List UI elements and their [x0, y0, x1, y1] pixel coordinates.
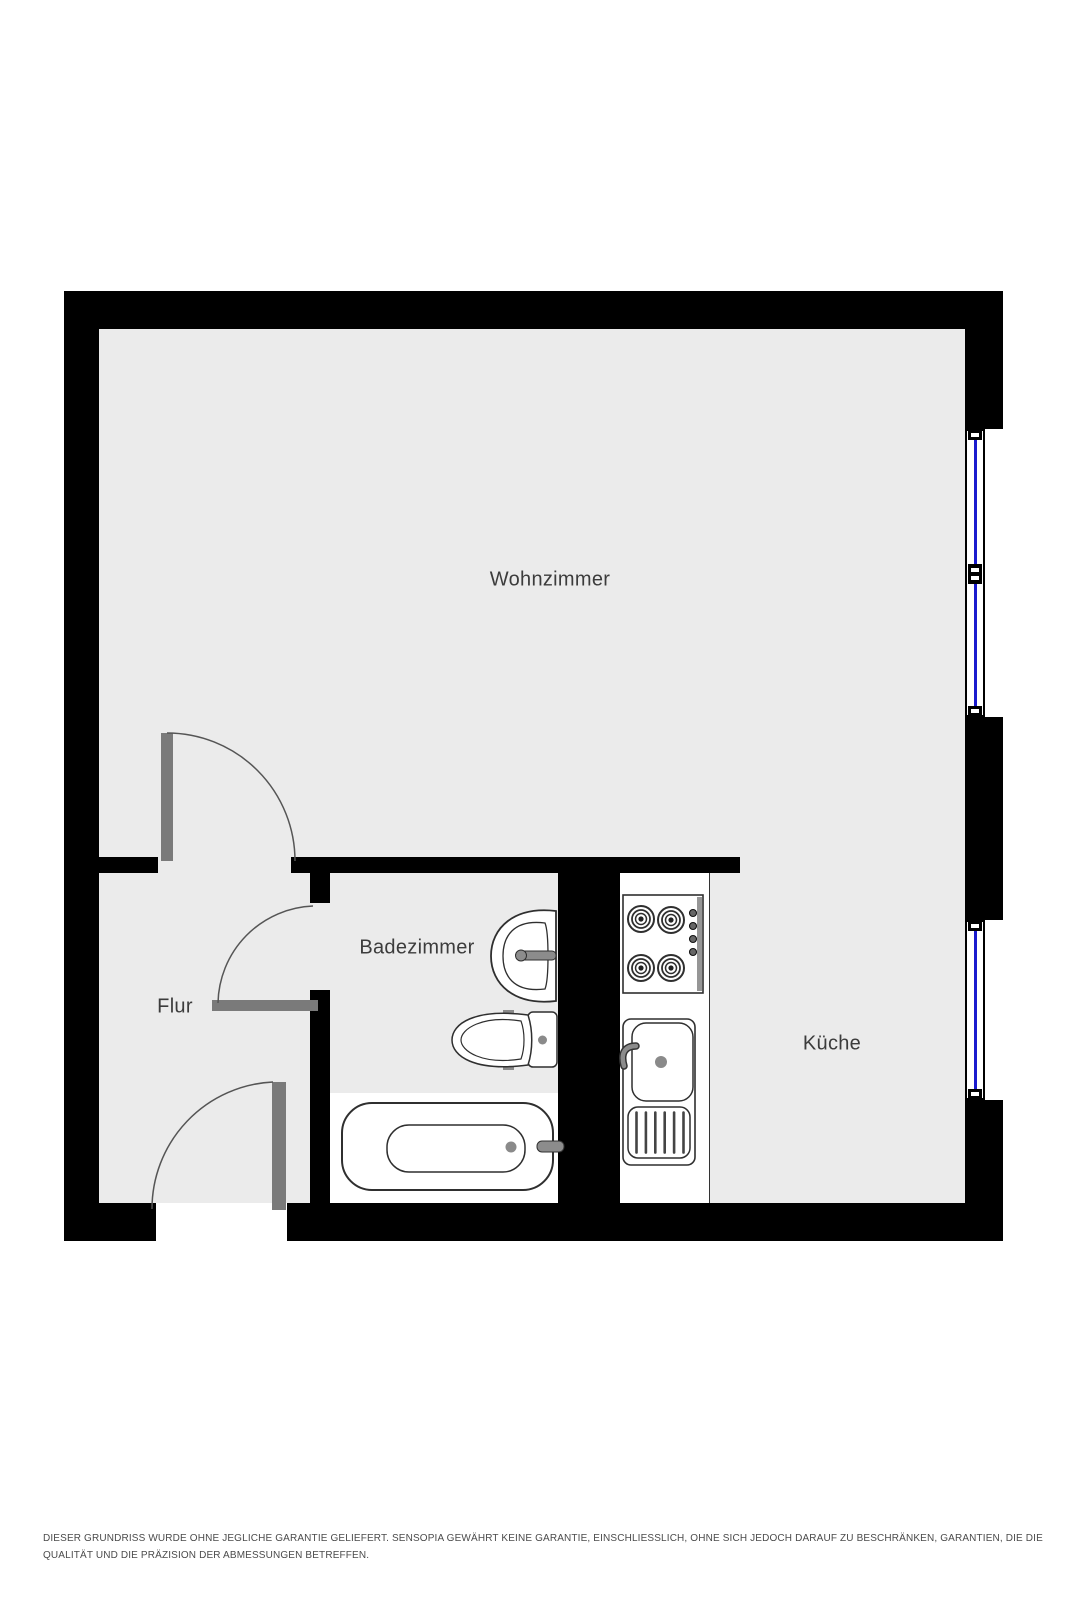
- apartment-floor: [99, 329, 965, 1203]
- window-1-top-cap: [968, 430, 982, 440]
- wall-top: [64, 291, 1003, 329]
- entrance-door-leaf: [272, 1082, 286, 1210]
- disclaimer-line-2: QUALITÄT UND DIE PRÄZISION DER ABMESSUNG…: [43, 1547, 1043, 1564]
- wall-flur-bad-stub: [310, 873, 330, 903]
- wall-flur-bad-lower: [310, 990, 330, 1203]
- wall-interior-left-segment: [99, 857, 158, 873]
- bathtub-platform: [330, 1093, 560, 1203]
- window-2-bottom-cap: [968, 1089, 982, 1099]
- room-label-kueche: Küche: [803, 1033, 861, 1056]
- window-1-bottom-cap: [968, 706, 982, 716]
- disclaimer-line-1: DIESER GRUNDRISS WURDE OHNE JEGLICHE GAR…: [43, 1530, 1043, 1547]
- disclaimer-text: DIESER GRUNDRISS WURDE OHNE JEGLICHE GAR…: [43, 1530, 1043, 1564]
- window-2-top-cap: [968, 921, 982, 931]
- room-label-wohnzimmer: Wohnzimmer: [490, 569, 610, 592]
- bathroom-door-leaf: [212, 1000, 318, 1011]
- room-label-flur: Flur: [157, 996, 193, 1019]
- entrance-doorway: [156, 1203, 287, 1241]
- living-room-door-leaf: [161, 733, 173, 861]
- room-label-badezimmer: Badezimmer: [359, 937, 474, 960]
- wall-left: [64, 291, 99, 1241]
- wall-interior-right-segment: [291, 857, 740, 873]
- floor-plan: Wohnzimmer Badezimmer Flur Küche DIESER …: [0, 0, 1067, 1600]
- window-1-mullion: [968, 564, 982, 584]
- window-2-glass: [974, 929, 977, 1091]
- wall-bad-kueche: [558, 873, 620, 1203]
- kitchen-counter: [620, 873, 710, 1203]
